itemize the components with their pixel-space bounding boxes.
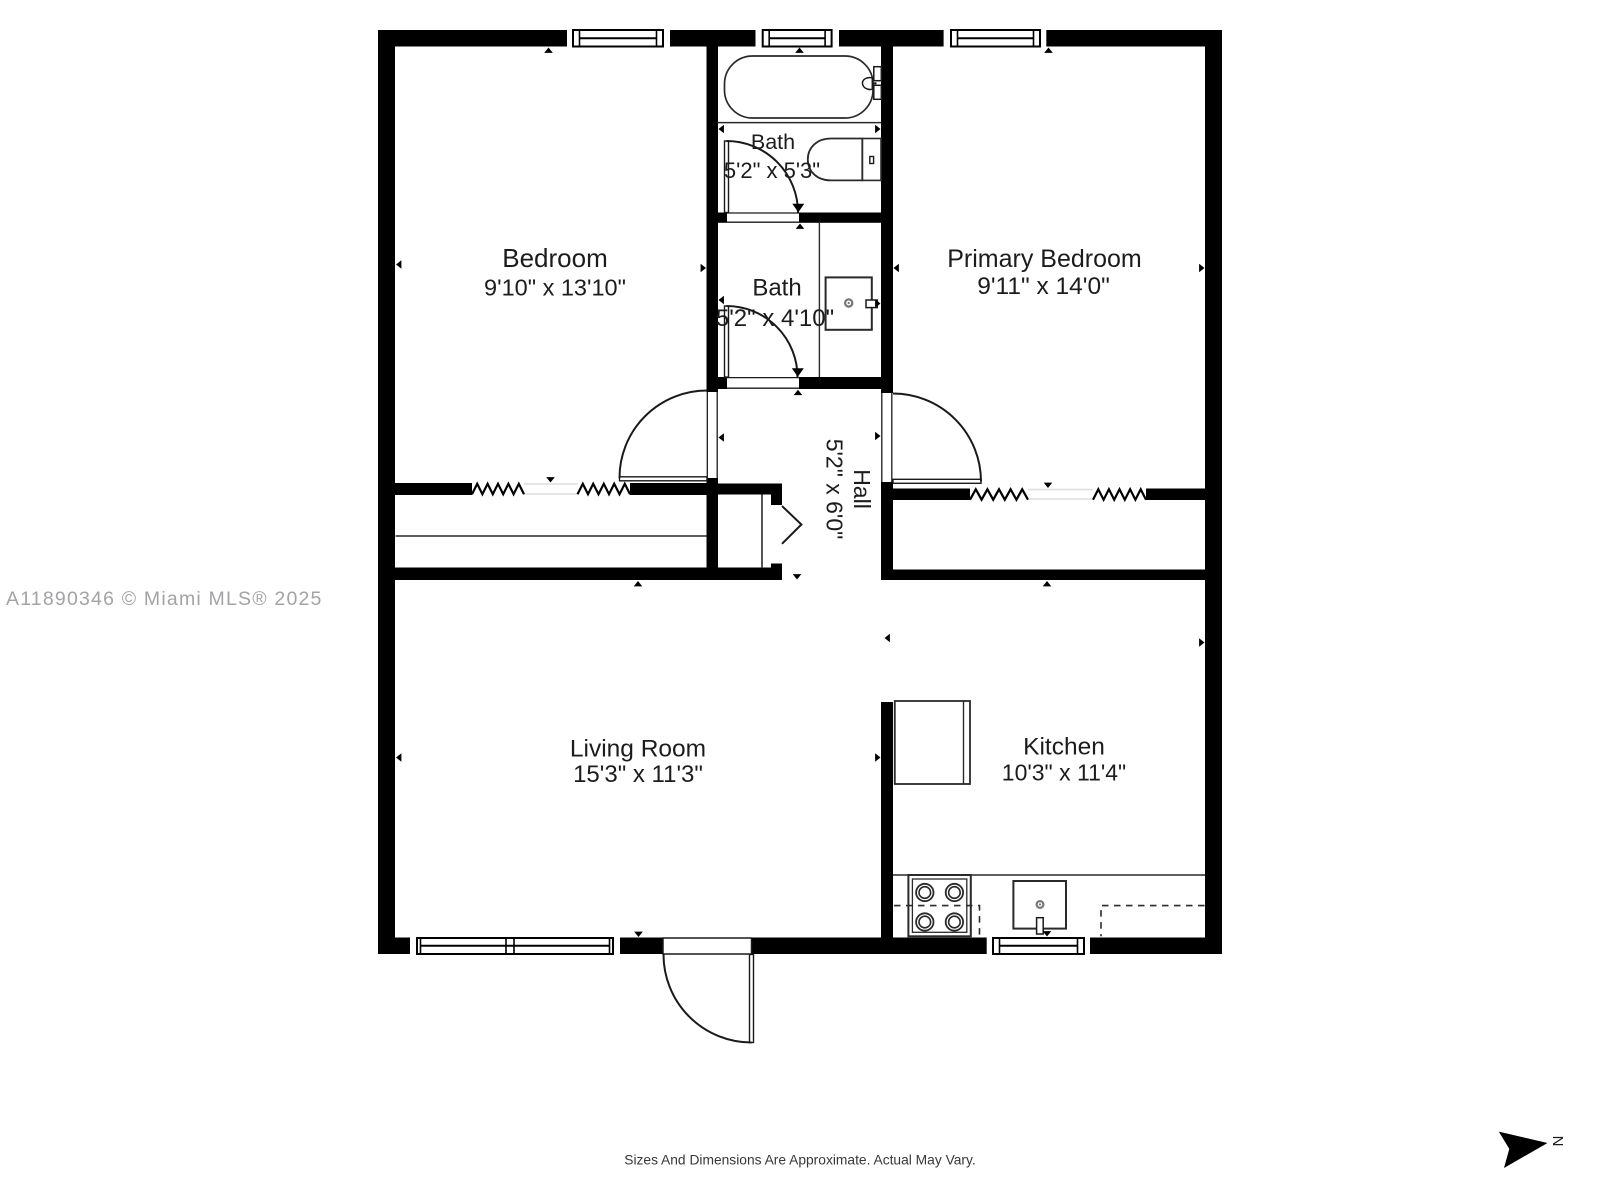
svg-text:9'10" x 13'10": 9'10" x 13'10" xyxy=(484,275,626,301)
svg-text:Bedroom: Bedroom xyxy=(502,243,608,273)
svg-text:10'3" x 11'4": 10'3" x 11'4" xyxy=(1002,760,1126,786)
svg-text:5'2" x 4'10": 5'2" x 4'10" xyxy=(716,305,834,332)
svg-text:5'2" x 6'0": 5'2" x 6'0" xyxy=(822,439,848,540)
svg-text:9'11" x 14'0": 9'11" x 14'0" xyxy=(977,273,1110,300)
svg-text:Bath: Bath xyxy=(752,275,801,302)
svg-text:15'3" x 11'3": 15'3" x 11'3" xyxy=(573,761,703,788)
svg-text:Primary Bedroom: Primary Bedroom xyxy=(947,245,1142,273)
svg-text:N: N xyxy=(1549,1136,1566,1147)
svg-text:5'2" x 5'3": 5'2" x 5'3" xyxy=(724,158,820,183)
svg-text:Bath: Bath xyxy=(751,130,795,154)
svg-text:A11890346 © Miami MLS® 2025: A11890346 © Miami MLS® 2025 xyxy=(6,588,323,610)
svg-text:Sizes And Dimensions Are Appro: Sizes And Dimensions Are Approximate. Ac… xyxy=(624,1153,975,1168)
svg-text:Kitchen: Kitchen xyxy=(1023,734,1105,761)
svg-text:Hall: Hall xyxy=(849,469,875,509)
svg-text:Living Room: Living Room xyxy=(570,736,706,763)
